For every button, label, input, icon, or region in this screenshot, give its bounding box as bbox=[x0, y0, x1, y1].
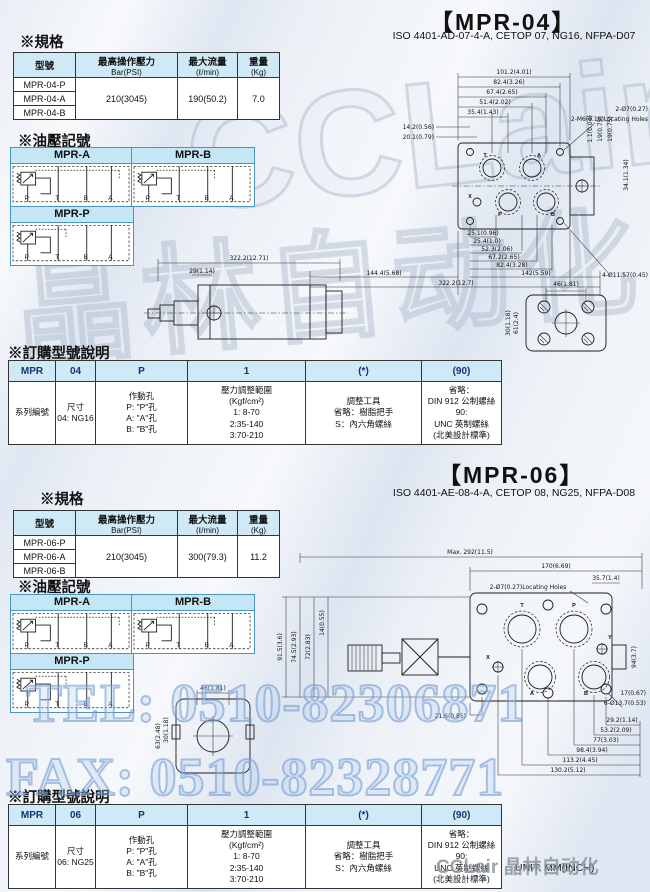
hydraulic-symbol-diagram: P T B A bbox=[11, 670, 131, 712]
dim-label: 6-Ø13.7(0.53) bbox=[604, 700, 646, 707]
dim-label: 34.1(1.34) bbox=[623, 159, 630, 190]
hydraulic-symbol-diagram: P T B A bbox=[11, 164, 131, 206]
footer-brand: CCLair 晶林自动化 bbox=[436, 852, 599, 879]
symbol-mpr-p: MPR-P P T B A bbox=[10, 206, 134, 266]
screw-cell: 省略： DIN 912 公制螺絲 90: UNC 英制螺絲 (北美設計標準) bbox=[422, 382, 502, 445]
code-mpr: MPR bbox=[9, 805, 56, 826]
port-label: A bbox=[530, 691, 534, 697]
dim-label: 67.2(2.65) bbox=[488, 254, 519, 261]
hydraulic-symbol-diagram: P T B A bbox=[132, 611, 252, 653]
code-tool: (*) bbox=[306, 361, 422, 382]
mpr06-title: 【MPR-06】 bbox=[438, 456, 584, 490]
dim-label: 61(2.4) bbox=[513, 312, 520, 334]
mpr04-dimension-drawing: T A P B X 101.2(4.01) 82.4(3.26) 67.4(2.… bbox=[140, 55, 650, 355]
model-cell: MPR-04-A bbox=[14, 92, 76, 106]
code-port: P bbox=[96, 361, 188, 382]
dim-label: 142(5.59) bbox=[521, 270, 551, 277]
symbol-title: MPR-P bbox=[11, 654, 133, 670]
port-cell: 作動孔 P: "P"孔 A: "A"孔 B: "B"孔 bbox=[96, 826, 188, 889]
code-tool: (*) bbox=[306, 805, 422, 826]
dim-label: 322.2(12.7) bbox=[438, 280, 473, 287]
dim-label: Max. 292(11.5) bbox=[447, 549, 493, 556]
port-label: T bbox=[520, 603, 524, 609]
port-cell: 作動孔 P: "P"孔 A: "A"孔 B: "B"孔 bbox=[96, 382, 188, 445]
col-pressure: 最高操作壓力Bar(PSI) bbox=[76, 511, 178, 536]
dim-label: 113.2(4.45) bbox=[562, 757, 597, 764]
dim-label: 21.6(0.85) bbox=[435, 713, 466, 720]
port-label: P bbox=[25, 701, 29, 708]
end-view bbox=[172, 690, 254, 773]
flow-cell: 300(79.3) bbox=[178, 536, 238, 578]
dim-label: 35.7(1.4) bbox=[592, 575, 620, 582]
port-label: B bbox=[84, 254, 88, 261]
code-range: 1 bbox=[188, 805, 306, 826]
dim-label: 19(0.75) bbox=[597, 116, 604, 142]
port-label: P bbox=[25, 642, 29, 649]
dim-label: 144.4(5.68) bbox=[366, 270, 401, 277]
dim-label: 20.1(0.79) bbox=[403, 134, 434, 141]
code-size: 06 bbox=[56, 805, 96, 826]
dim-label: 29.2(1.14) bbox=[606, 717, 637, 724]
port-label: T bbox=[55, 254, 59, 261]
dim-label: 101.2(4.01) bbox=[496, 69, 531, 76]
dim-label: 67.4(2.65) bbox=[486, 89, 517, 96]
dim-label: 2-Ø7(0.27) bbox=[615, 106, 648, 113]
symbol-mpr-a: MPR-A P T B A bbox=[10, 147, 134, 207]
dim-label: 46(1.81) bbox=[553, 281, 579, 288]
tool-cell: 調整工具 省略：樹脂把手 S：內六角螺絲 bbox=[306, 826, 422, 889]
pressure-cell: 210(3045) bbox=[76, 536, 178, 578]
port-label: B bbox=[205, 642, 209, 649]
symbol-mpr-p: MPR-P P T B A bbox=[10, 653, 134, 713]
dim-label: 170(6.69) bbox=[541, 563, 571, 570]
model-cell: MPR-06-A bbox=[14, 550, 76, 564]
model-cell: MPR-04-P bbox=[14, 78, 76, 92]
port-label: P bbox=[146, 642, 150, 649]
dimension-lines-bottom bbox=[470, 649, 640, 777]
code-range: 1 bbox=[188, 361, 306, 382]
table-row: 系列編號 尺寸 04: NG16 作動孔 P: "P"孔 A: "A"孔 B: … bbox=[9, 382, 502, 445]
end-view bbox=[526, 288, 606, 351]
dim-label: 4-Ø11.57(0.45) bbox=[602, 272, 648, 279]
symbol-title: MPR-P bbox=[11, 207, 133, 223]
col-model: 型號 bbox=[14, 511, 76, 536]
port-label: B bbox=[551, 212, 555, 218]
dim-label: 91.5(3.6) bbox=[277, 633, 284, 661]
col-flow: 最大流量(ℓ/min) bbox=[178, 511, 238, 536]
port-label: B bbox=[584, 691, 588, 697]
adjustment-knob bbox=[348, 639, 470, 675]
dim-label: 30(1.18) bbox=[505, 310, 512, 336]
port-label: P bbox=[25, 195, 29, 202]
size-cell: 尺寸 04: NG16 bbox=[56, 382, 96, 445]
dim-label: 322.2(12.71) bbox=[229, 255, 268, 262]
dim-label: 98.4(3.94) bbox=[576, 747, 607, 754]
dim-label: 1.1(0.04) bbox=[587, 115, 594, 143]
symbol-mpr-a: MPR-A P T B A bbox=[10, 594, 134, 654]
side-view bbox=[144, 259, 348, 339]
code-screw: (90) bbox=[422, 805, 502, 826]
code-size: 04 bbox=[56, 361, 96, 382]
table-row: 系列編號 尺寸 06: NG25 作動孔 P: "P"孔 A: "A"孔 B: … bbox=[9, 826, 502, 889]
port-label: X bbox=[468, 194, 472, 200]
dim-label: 63(2.48) bbox=[155, 723, 162, 749]
dim-label: 72(2.83) bbox=[305, 634, 312, 660]
code-screw: (90) bbox=[422, 361, 502, 382]
dim-label: 30(1.18) bbox=[163, 717, 170, 743]
series-cell: 系列編號 bbox=[9, 826, 56, 889]
dim-label: 2-Ø7(0.27)Locating Holes bbox=[490, 584, 567, 591]
hydraulic-symbol-diagram: P T B A bbox=[11, 223, 131, 265]
top-view: T A P B X bbox=[452, 143, 600, 229]
dim-label: 130.2(5.12) bbox=[550, 767, 585, 774]
dim-label: 46(1.81) bbox=[200, 685, 226, 692]
port-label: P bbox=[498, 212, 502, 218]
port-label: A bbox=[108, 254, 113, 261]
range-cell: 壓力調整範圍 (Kgf/cm²) 1: 8-70 2:35-140 3:70-2… bbox=[188, 826, 306, 889]
port-label: P bbox=[572, 603, 576, 609]
dim-label: 14.2(0.56) bbox=[403, 124, 434, 131]
dim-label: 35.4(1.43) bbox=[467, 109, 498, 116]
dim-label: 29(1.14) bbox=[189, 268, 215, 275]
code-mpr: MPR bbox=[9, 361, 56, 382]
port-label: A bbox=[108, 701, 113, 708]
symbol-title: MPR-B bbox=[132, 595, 254, 611]
col-weight: 重量(Kg) bbox=[238, 511, 280, 536]
mpr04-order-table: MPR 04 P 1 (*) (90) 系列編號 尺寸 04: NG16 作動孔… bbox=[8, 360, 502, 445]
mpr04-spec-heading: ※規格 bbox=[20, 31, 64, 52]
port-label: A bbox=[537, 153, 541, 159]
dim-label: 94(3.7) bbox=[631, 646, 638, 668]
mpr06-order-table: MPR 06 P 1 (*) (90) 系列編號 尺寸 06: NG25 作動孔… bbox=[8, 804, 502, 889]
mpr06-subtitle: ISO 4401-AE-08-4-A, CETOP 08, NG25, NFPA… bbox=[378, 487, 650, 499]
col-model: 型號 bbox=[14, 53, 76, 78]
port-label: B bbox=[84, 642, 88, 649]
dim-label: 25.1(0.96) bbox=[467, 230, 498, 237]
dim-label: 51.4(2.02) bbox=[479, 99, 510, 106]
dim-label: 19(0.75) bbox=[607, 116, 614, 142]
dim-label: 74.5(2.93) bbox=[291, 631, 298, 662]
port-label: A bbox=[108, 195, 113, 202]
symbol-title: MPR-A bbox=[11, 148, 133, 164]
port-label: X bbox=[486, 655, 490, 661]
size-cell: 尺寸 06: NG25 bbox=[56, 826, 96, 889]
datasheet-page: CCLair 晶林自动化 TEL: 0510-82306871 FAX: 051… bbox=[0, 0, 650, 892]
port-label: P bbox=[25, 254, 29, 261]
port-label: T bbox=[55, 195, 59, 202]
port-label: B bbox=[84, 195, 88, 202]
symbol-title: MPR-A bbox=[11, 595, 133, 611]
range-cell: 壓力調整範圍 (Kgf/cm²) 1: 8-70 2:35-140 3:70-2… bbox=[188, 382, 306, 445]
table-row: MPR-06-P 210(3045) 300(79.3) 11.2 bbox=[14, 536, 280, 550]
dim-label: 17(0.67) bbox=[620, 690, 646, 697]
port-label: T bbox=[483, 153, 487, 159]
dim-label: 82.4(3.28) bbox=[496, 262, 527, 269]
tool-cell: 調整工具 省略：樹脂把手 S：內六角螺絲 bbox=[306, 382, 422, 445]
mpr06-spec-heading: ※規格 bbox=[40, 488, 84, 509]
symbol-mpr-b: MPR-B P T B A bbox=[131, 594, 255, 654]
series-cell: 系列編號 bbox=[9, 382, 56, 445]
dim-label: 14(0.55) bbox=[319, 610, 326, 636]
mpr06-dimension-drawing: T P X Y A B Max. 292(11.5) 170(6.69) bbox=[270, 545, 650, 795]
port-label: B bbox=[84, 701, 88, 708]
port-label: A bbox=[229, 642, 234, 649]
dimension-lines bbox=[282, 553, 642, 697]
model-cell: MPR-06-P bbox=[14, 536, 76, 550]
dim-label: 82.4(3.26) bbox=[493, 79, 524, 86]
model-cell: MPR-04-B bbox=[14, 106, 76, 120]
dim-label: 25.4(1.0) bbox=[473, 238, 501, 245]
hydraulic-symbol-diagram: P T B A bbox=[11, 611, 131, 653]
dim-label: 77(3.03) bbox=[593, 737, 619, 744]
mpr06-end-view-drawing: 46(1.81) 63(2.48) 30(1.18) bbox=[150, 685, 262, 787]
port-label: Y bbox=[608, 635, 612, 641]
mpr04-subtitle: ISO 4401-AD-07-4-A, CETOP 07, NG16, NFPA… bbox=[378, 30, 650, 42]
dimension-lines bbox=[436, 73, 610, 275]
port-label: T bbox=[55, 701, 59, 708]
dim-label: 53.2(2.09) bbox=[600, 727, 631, 734]
mpr06-spec-table: 型號 最高操作壓力Bar(PSI) 最大流量(ℓ/min) 重量(Kg) MPR… bbox=[13, 510, 280, 578]
top-view: T P X Y A B bbox=[470, 593, 626, 701]
code-port: P bbox=[96, 805, 188, 826]
port-label: T bbox=[176, 642, 180, 649]
port-label: T bbox=[55, 642, 59, 649]
dim-label: 52.3(2.06) bbox=[481, 246, 512, 253]
port-label: A bbox=[108, 642, 113, 649]
